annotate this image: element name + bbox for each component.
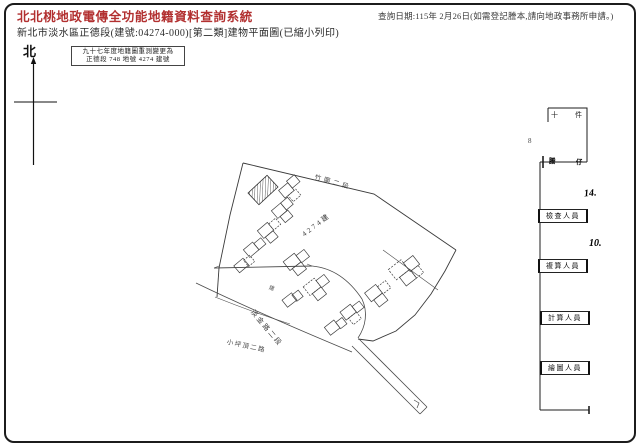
north-label: 北 <box>23 41 36 60</box>
signature-box-recalculator: 複算人員 <box>538 259 588 273</box>
survey-note-box: 九十七年度地籍圖重測變更為 正德段 748 地號 4274 建號 <box>71 46 185 66</box>
stamp-mark-left: 謄 <box>549 155 556 165</box>
receipt-box-char-left: 十 <box>551 110 558 120</box>
document-title: 新北市淡水區正德段(建號:04274-000)[第二類]建物平面圖(已縮小列印) <box>17 24 339 39</box>
road-lines <box>196 250 438 414</box>
query-date-note: 查詢日期:115年 2月26日(如需登記謄本,請向地政事務所申請。) <box>378 10 614 22</box>
receipt-box-char-right: 件 <box>575 110 582 120</box>
handwritten-number-14: 14. <box>584 187 597 199</box>
survey-note-line1: 九十七年度地籍圖重測變更為 <box>73 48 183 56</box>
stamp-mark-right: 仔 <box>576 156 583 166</box>
signature-box-calculator: 計算人員 <box>540 311 590 325</box>
north-arrow-icon <box>14 57 57 165</box>
system-title: 北北桃地政電傳全功能地籍資料查詢系統 <box>17 6 253 25</box>
signature-box-inspector: 檢查人員 <box>538 209 588 223</box>
handwritten-number-10: 10. <box>589 238 602 249</box>
side-handwritten-mark: 8 <box>528 137 532 145</box>
survey-note-line2: 正德段 748 地號 4274 建號 <box>73 56 183 64</box>
signature-box-draftsman: 繪圖人員 <box>540 361 590 375</box>
scanned-plan-page: 北北桃地政電傳全功能地籍資料查詢系統 新北市淡水區正德段(建號:04274-00… <box>0 0 640 446</box>
hatched-building <box>248 175 278 204</box>
